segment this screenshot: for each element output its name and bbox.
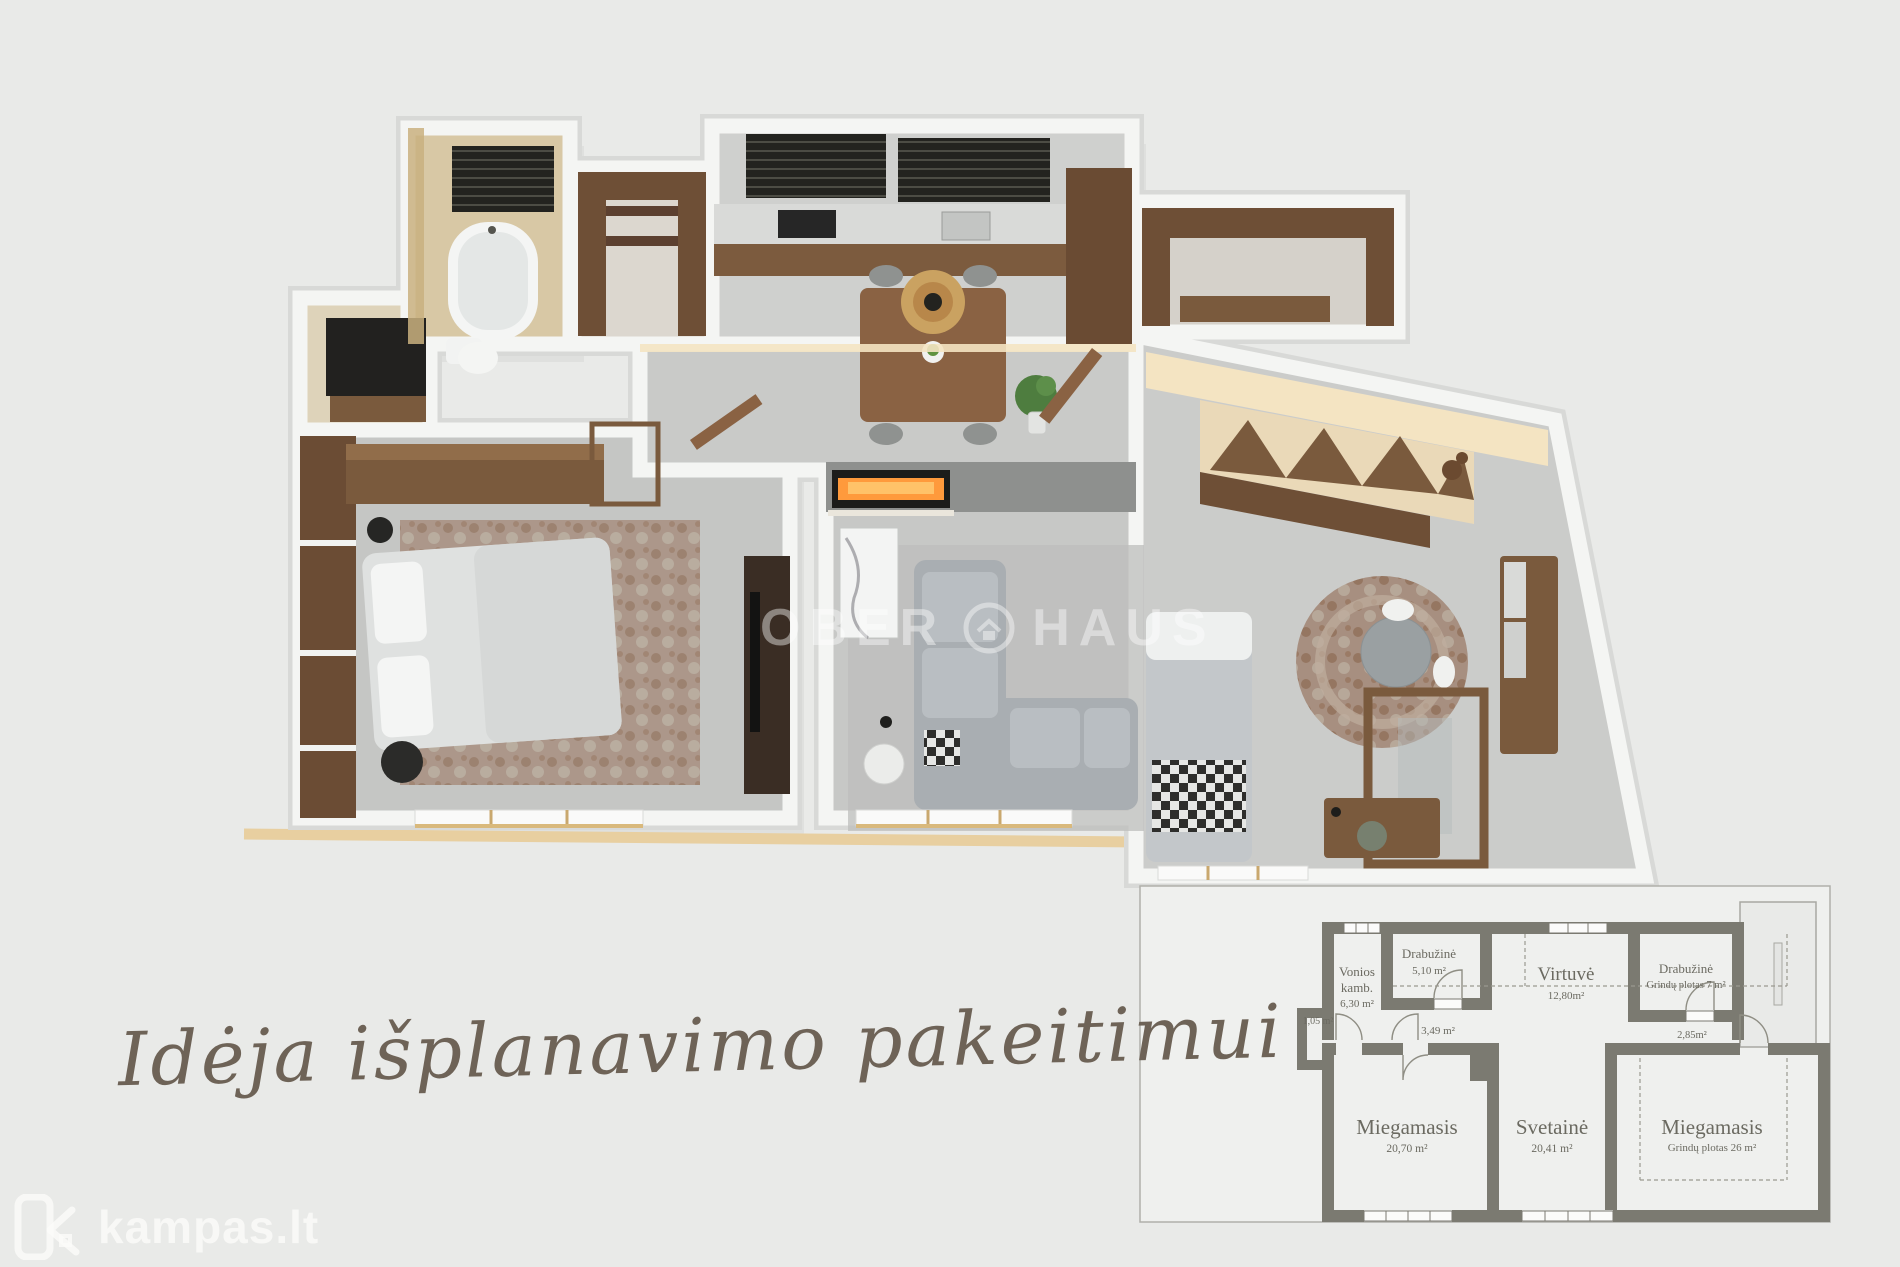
room-area-virtuve: 12,80m² — [1548, 990, 1585, 1002]
checkered-pillow — [924, 730, 960, 766]
door-threshold — [1686, 1011, 1714, 1021]
fireplace-flame-core — [848, 482, 934, 494]
cooktop — [778, 210, 836, 238]
shelf-board — [606, 236, 678, 246]
wall — [1428, 1043, 1470, 1055]
wall — [1628, 934, 1640, 1022]
area-small-1: 1,05 m² — [1303, 1016, 1334, 1027]
pendant-lamp-core — [924, 293, 942, 311]
watermark-ober: OBER — [760, 598, 946, 658]
faucet — [488, 226, 496, 234]
wall — [1605, 1055, 1617, 1210]
shelf-board — [606, 206, 678, 216]
chair — [963, 423, 997, 445]
kampas-logo-icon — [14, 1194, 84, 1260]
room-label-vonios-2: kamb. — [1341, 980, 1373, 995]
window-blinds — [898, 138, 1050, 202]
headboard-shelf — [300, 540, 356, 546]
shelf — [1142, 208, 1394, 238]
desk-chair — [1357, 821, 1387, 851]
bathtub-inner — [458, 232, 528, 330]
house-roof — [978, 621, 1000, 631]
room-label-virtuve: Virtuvė — [1538, 964, 1595, 985]
wall — [1732, 934, 1744, 1040]
pillow — [377, 655, 434, 738]
room-area-svetaine: 20,41 m² — [1531, 1143, 1573, 1155]
listing-image: Vonios kamb. 6,30 m² Drabužinė 5,10 m² 1… — [0, 0, 1900, 1267]
shelf — [678, 172, 706, 336]
room-area-vonios: 6,30 m² — [1340, 998, 1375, 1010]
window — [415, 810, 643, 826]
bed-throw — [473, 537, 622, 744]
wall — [1322, 1055, 1334, 1222]
wall — [1613, 1210, 1830, 1222]
plan-3d — [244, 126, 1659, 894]
wall — [1768, 1043, 1818, 1055]
sofa-cushion — [1010, 708, 1080, 768]
chair — [1382, 599, 1414, 621]
wall — [1322, 1210, 1364, 1222]
sideboard-panel — [1504, 562, 1526, 618]
desk-lamp — [1331, 807, 1341, 817]
wall — [1381, 934, 1393, 1008]
wall — [1462, 998, 1492, 1010]
side-chair — [864, 744, 904, 784]
door-shape — [18, 1197, 50, 1257]
window — [1344, 923, 1380, 933]
wall — [1605, 1043, 1740, 1055]
wall — [1381, 998, 1434, 1010]
room-label-drabuzine-right: Drabužinė — [1659, 961, 1713, 976]
room-label-drabuzine-left: Drabužinė — [1402, 946, 1456, 961]
toilet — [458, 342, 498, 374]
area-small-3: 2,85m² — [1677, 1030, 1707, 1041]
wall — [1322, 1043, 1336, 1055]
wall — [1362, 1043, 1403, 1055]
window-sill — [856, 824, 1072, 828]
room-area-miegamasis-right: Grindų plotas 26 m² — [1668, 1142, 1757, 1154]
lit-wall-strip — [640, 344, 1136, 352]
shelf — [1142, 208, 1170, 326]
watermark-haus: HAUS — [1032, 598, 1215, 658]
headboard-shelf — [300, 650, 356, 656]
sofa-cushion — [922, 648, 998, 718]
side-table — [381, 741, 423, 783]
fireplace-mantel — [828, 510, 954, 516]
wall — [1628, 922, 1744, 934]
room-area-miegamasis-left: 20,70 m² — [1386, 1143, 1428, 1155]
ring — [966, 605, 1012, 651]
room-label-svetaine: Svetainė — [1516, 1115, 1588, 1139]
tv-screen — [750, 592, 760, 732]
dresser-top — [346, 444, 604, 460]
room-area-drabuzine-right: Grindų plotas 7 m² — [1646, 980, 1725, 991]
room-label-miegamasis-right: Miegamasis — [1661, 1115, 1762, 1139]
room-area-drabuzine-left: 5,10 m² — [1412, 965, 1447, 977]
floor-lamp — [880, 716, 892, 728]
monkey-decor-head — [1456, 452, 1468, 464]
window — [1549, 923, 1607, 933]
wall-pillar — [1470, 1043, 1499, 1081]
potted-plant-leaf — [1036, 376, 1056, 396]
lower-cabinet — [1180, 296, 1330, 322]
towel-radiator — [452, 146, 554, 212]
shelf — [578, 172, 606, 336]
area-small-2: 3,49 m² — [1421, 1025, 1456, 1037]
side-table — [367, 517, 393, 543]
chair — [963, 265, 997, 287]
headboard-shelf — [300, 745, 356, 751]
wall — [1452, 1210, 1522, 1222]
chair — [869, 265, 903, 287]
chair — [1433, 656, 1455, 688]
room-label-miegamasis-left: Miegamasis — [1356, 1115, 1457, 1139]
room-label-vonios: Vonios — [1339, 964, 1375, 979]
watermark: OBER HAUS — [760, 598, 1216, 658]
chair — [869, 423, 903, 445]
window — [856, 810, 1072, 826]
window — [1158, 866, 1308, 880]
shelf — [1366, 208, 1394, 326]
sideboard-panel — [1504, 622, 1526, 678]
window-sill — [415, 824, 643, 828]
wall — [1628, 1010, 1686, 1022]
wall — [1487, 1078, 1499, 1210]
round-table — [1361, 617, 1431, 687]
house-body — [983, 631, 995, 640]
wood-slat-front — [330, 396, 426, 422]
door-threshold — [1434, 999, 1462, 1009]
tall-cabinet — [1066, 168, 1132, 344]
pillow — [370, 561, 427, 644]
brand-logo: kampas.lt — [14, 1194, 319, 1260]
bed — [361, 537, 622, 752]
sink — [942, 212, 990, 240]
oberhaus-ring-icon — [962, 601, 1016, 655]
window-blinds — [746, 134, 886, 198]
balcony-window — [1774, 943, 1782, 1005]
checkered-blanket — [1152, 760, 1246, 832]
brand-name: kampas.lt — [98, 1200, 319, 1254]
counter — [714, 204, 1070, 244]
wall — [1480, 934, 1492, 1008]
wall — [1818, 1043, 1830, 1222]
sofa-cushion — [1084, 708, 1130, 768]
marble-wall — [408, 128, 424, 344]
